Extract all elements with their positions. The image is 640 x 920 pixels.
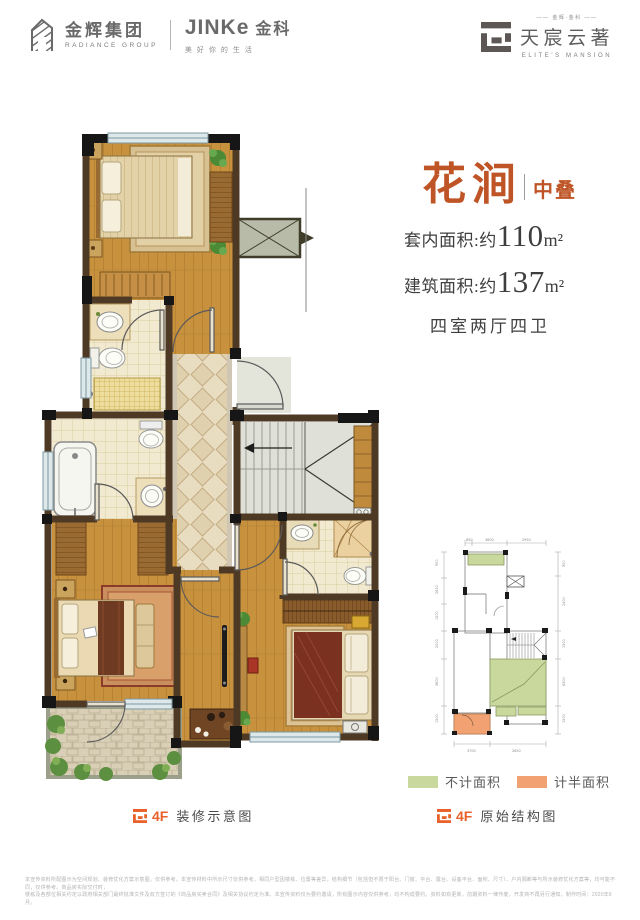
disclaimer: 本宣传资料所配图示为空间规划、装修优化方案示意图，仅供参考。本宣传材料中所示尺寸… (25, 877, 617, 907)
yun-logo-icon (481, 21, 511, 53)
legend-swatch-orange (517, 776, 547, 788)
svg-text:1500: 1500 (435, 611, 439, 620)
svg-text:2950: 2950 (522, 538, 531, 542)
gross-area-label: 建筑面积:约 (404, 272, 497, 297)
sink (291, 525, 313, 541)
floor-plan-structural: 850 3600 2950 900 2620 1500 2000 3600 15… (424, 534, 620, 770)
caption-text-left: 装修示意图 (176, 806, 254, 825)
disclaimer-line-1: 本宣传资料所配图示为空间规划、装修优化方案示意图，仅供参考。本宣传材料中所示尺寸… (25, 877, 617, 892)
svg-text:3600: 3600 (485, 538, 494, 542)
excluded-area-main (490, 659, 546, 706)
window (250, 732, 340, 742)
pillow (102, 200, 121, 232)
window (81, 358, 91, 398)
chair (248, 658, 258, 673)
unit-title: 花涧 (422, 162, 522, 208)
legend-item-half: 计半面积 (517, 772, 610, 791)
gross-area-value: 137 (497, 264, 545, 300)
window (108, 133, 208, 143)
yun-logo-icon (437, 809, 451, 823)
svg-text:1500: 1500 (562, 714, 566, 723)
svg-text:1500: 1500 (435, 714, 439, 723)
pillow (62, 604, 78, 634)
floor-unit (343, 721, 367, 733)
excluded-area-strip (518, 707, 546, 715)
excluded-area-baywindow (468, 554, 504, 565)
window (125, 699, 172, 709)
area-legend: 不计面积 计半面积 (408, 772, 626, 791)
header: 金辉集团 RADIANCE GROUP JINKe 金科 美好你的生活 —— 金… (0, 0, 640, 78)
caption-text-right: 原始结构图 (480, 806, 558, 825)
caption-floor-left: 4F (152, 808, 168, 824)
yun-logo-icon (133, 809, 147, 823)
pillow (345, 676, 368, 714)
header-divider (170, 20, 171, 50)
jinke-logo-en: JINKe (185, 16, 250, 40)
svg-text:850: 850 (466, 538, 472, 542)
dresser (100, 272, 170, 298)
disclaimer-line-2: 楼栋及各部位相关约定以政府相关部门最终批准文件及双方签订的《商品房买卖合同》及相… (25, 892, 617, 907)
svg-text:2400: 2400 (562, 597, 566, 606)
gross-area-unit: m² (545, 276, 564, 297)
legend-label-green: 不计面积 (445, 772, 501, 791)
ac-platform (238, 219, 314, 257)
excluded-area-strip (496, 707, 516, 716)
svg-text:3600: 3600 (435, 677, 439, 686)
legend-label-orange: 计半面积 (554, 772, 610, 791)
radiance-group-icon (28, 17, 56, 53)
legend-item-excluded: 不计面积 (408, 772, 501, 791)
half-area-terrace (454, 714, 490, 734)
book (83, 627, 97, 638)
wardrobe (56, 522, 86, 575)
window (43, 452, 53, 510)
mansion-name-cn: 天宸云著 (520, 23, 614, 50)
nightstand (352, 616, 369, 628)
sink (97, 312, 123, 332)
jinke-slogan: 美好你的生活 (185, 45, 292, 55)
mansion-name-en: ELITE'S MANSION (522, 53, 613, 59)
room-configuration: 四室两厅四卫 (430, 312, 629, 337)
toilet (140, 421, 162, 429)
svg-text:3700: 3700 (467, 749, 476, 753)
caption-decorated-plan: 4F 装修示意图 (133, 806, 254, 825)
unit-subtitle: 中叠 (533, 174, 577, 203)
bench (136, 604, 154, 668)
wardrobe (210, 172, 232, 242)
unit-info-panel: 花涧 中叠 套内面积:约 110 m² 建筑面积:约 137 m² 四室两厅四卫 (404, 162, 629, 337)
shower-area (94, 378, 160, 410)
gross-area-line: 建筑面积:约 137 m² (404, 264, 629, 300)
caption-structural-plan: 4F 原始结构图 (437, 806, 558, 825)
radiance-name-en: RADIANCE GROUP (65, 42, 158, 49)
mansion-small-label: —— 金辉·金科 —— (537, 14, 598, 21)
svg-text:2000: 2000 (435, 639, 439, 648)
svg-text:900: 900 (562, 561, 566, 567)
jinke-logo-cn: 金科 (255, 15, 291, 39)
title-divider (524, 174, 525, 200)
inner-area-label: 套内面积:约 (404, 226, 497, 251)
pillow (102, 162, 121, 194)
caption-floor-right: 4F (456, 808, 472, 824)
wardrobe (138, 522, 168, 575)
radiance-name-cn: 金辉集团 (65, 21, 158, 40)
pillow (62, 638, 78, 668)
pillow (345, 634, 368, 672)
mansion-logo: —— 金辉·金科 —— 天宸云著 ELITE'S MANSION (481, 14, 614, 59)
legend-swatch-green (408, 776, 438, 788)
page: { "header": { "radiance": {"cn": "金辉集团",… (0, 0, 640, 920)
sink (141, 485, 163, 507)
floor-plan-decorated (40, 112, 400, 802)
terrace (45, 707, 181, 781)
svg-text:900: 900 (435, 560, 439, 566)
inner-area-unit: m² (544, 230, 563, 251)
inner-area-value: 110 (497, 218, 544, 254)
svg-text:1500: 1500 (562, 639, 566, 648)
structural-stairs (507, 633, 546, 658)
svg-text:2620: 2620 (435, 585, 439, 594)
tv (222, 625, 227, 687)
inner-area-line: 套内面积:约 110 m² (404, 218, 629, 254)
corridor-floor (172, 354, 232, 570)
radiance-jinke-logo: 金辉集团 RADIANCE GROUP JINKe 金科 美好你的生活 (28, 15, 291, 55)
structural-ac-box (507, 576, 524, 587)
bed-runner (98, 601, 124, 675)
svg-text:6300: 6300 (562, 677, 566, 686)
svg-text:2850: 2850 (512, 749, 521, 753)
